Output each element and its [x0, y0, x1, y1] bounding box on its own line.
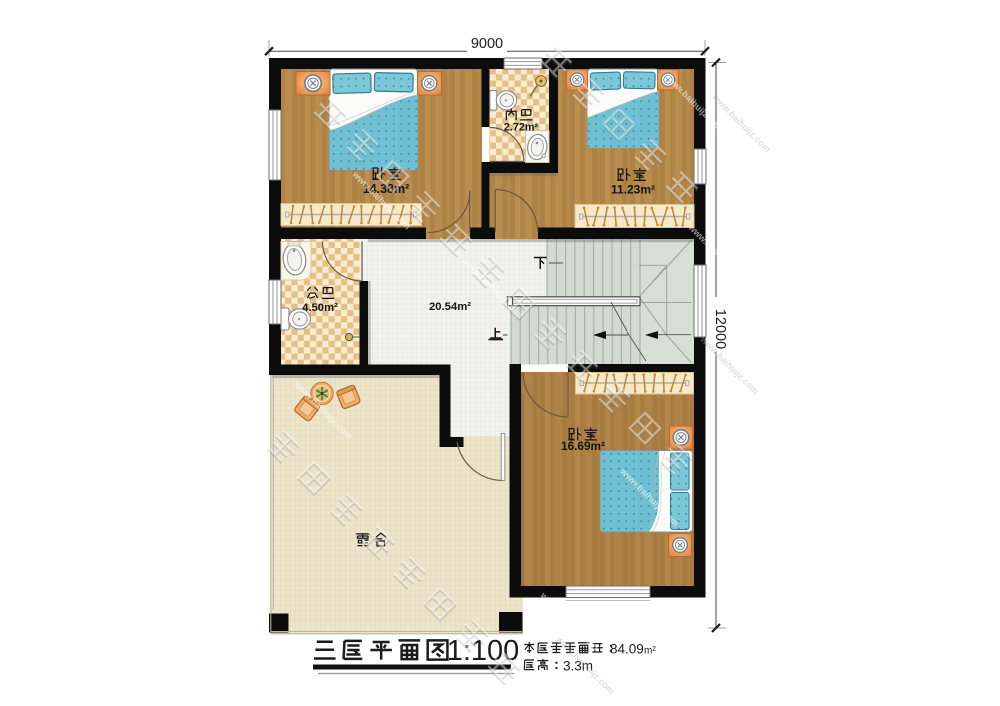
svg-text:84.09: 84.09	[610, 642, 644, 657]
svg-text:m²: m²	[644, 646, 656, 657]
svg-text:2.72m²: 2.72m²	[504, 122, 539, 134]
svg-text:20.54m²: 20.54m²	[429, 301, 471, 313]
svg-text:4.50m²: 4.50m²	[302, 302, 338, 314]
svg-text:9000: 9000	[471, 36, 503, 52]
svg-text:16.69m²: 16.69m²	[561, 439, 605, 453]
svg-text:11.23m²: 11.23m²	[611, 183, 655, 197]
